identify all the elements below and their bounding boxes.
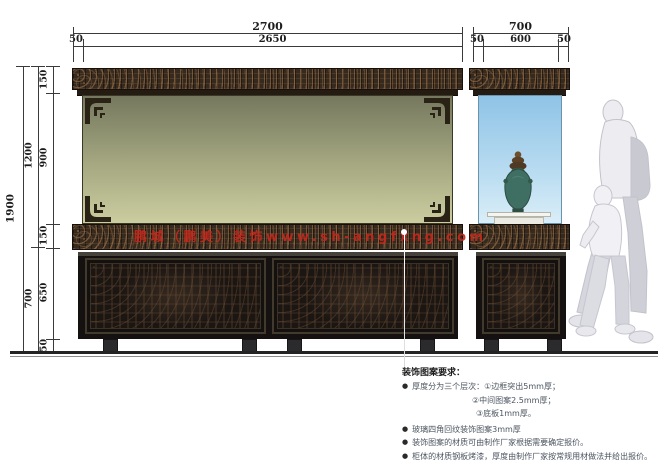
main-top-frieze bbox=[72, 68, 463, 90]
main-glass-panel bbox=[82, 95, 453, 224]
dim-label-1900: 1900 bbox=[6, 189, 17, 229]
dim-label-600: 600 bbox=[483, 34, 558, 45]
dim-label-50-side-right: 50 bbox=[551, 34, 577, 45]
dim-ext-tick bbox=[462, 27, 463, 62]
dim-label-2700: 2700 bbox=[73, 21, 462, 32]
dim-ext-tick bbox=[483, 39, 484, 62]
note-text: 装饰图案的材质可由制作厂家根据需要确定报价。 bbox=[412, 438, 588, 447]
main-carved-panel-left bbox=[85, 258, 266, 334]
note-item: ●装饰图案的材质可由制作厂家根据需要确定报价。 bbox=[402, 436, 658, 450]
dim-line-segments bbox=[53, 66, 54, 352]
elevation-drawing-canvas: 2700 50 2650 700 50 600 50 1900 1200 700… bbox=[0, 0, 660, 464]
note-text: 玻璃四角回纹装饰图案3mm厚 bbox=[412, 425, 521, 434]
note-item: ●玻璃四角回纹装饰图案3mm厚 bbox=[402, 423, 658, 437]
note-item: ●柜体的材质钢板烤漆，厚度由制作厂家按常规用材做法并给出报价。 bbox=[402, 450, 658, 464]
corner-ornament-icon bbox=[85, 98, 111, 124]
dim-label-700-left: 700 bbox=[24, 279, 35, 319]
dim-label-700: 700 bbox=[473, 21, 568, 32]
note-text: 柜体的材质钢板烤漆，厚度由制作厂家按常规用材做法并给出报价。 bbox=[412, 452, 652, 461]
side-top-frieze bbox=[469, 68, 570, 90]
ground-line-shadow bbox=[10, 356, 658, 357]
dim-ext-tick bbox=[473, 27, 474, 62]
bullet-icon: ● bbox=[402, 452, 408, 460]
note-item-sub: ③底板1mm厚。 bbox=[476, 407, 658, 421]
note-item-sub: ②中间图案2.5mm厚； bbox=[472, 394, 658, 408]
note-text: ②中间图案2.5mm厚； bbox=[472, 396, 555, 405]
dim-label-150-mid: 150 bbox=[39, 216, 50, 256]
dim-tick bbox=[16, 66, 30, 67]
dim-label-650: 650 bbox=[39, 273, 50, 313]
dim-label-2650: 2650 bbox=[83, 34, 462, 45]
dim-line-600 bbox=[473, 46, 568, 47]
scale-figures bbox=[565, 93, 660, 358]
note-leader-line bbox=[404, 233, 405, 367]
main-carved-panel-right bbox=[272, 258, 454, 334]
side-carved-panel bbox=[482, 258, 560, 334]
dim-ext-tick bbox=[568, 27, 569, 62]
dim-label-50-feet: 50 bbox=[39, 326, 50, 366]
bullet-icon: ● bbox=[402, 425, 408, 433]
note-text: 厚度分为三个层次：①边框突出5mm厚； bbox=[412, 382, 560, 391]
dim-ext-tick bbox=[83, 39, 84, 62]
corner-ornament-icon bbox=[424, 196, 450, 222]
corner-ornament-icon bbox=[85, 196, 111, 222]
decoration-notes: 装饰图案要求： ●厚度分为三个层次：①边框突出5mm厚； ②中间图案2.5mm厚… bbox=[402, 367, 658, 464]
artifact-vase bbox=[501, 150, 535, 216]
dim-ext-tick bbox=[558, 39, 559, 62]
note-leader-dot bbox=[401, 229, 407, 235]
bullet-icon: ● bbox=[402, 382, 408, 390]
bullet-icon: ● bbox=[402, 438, 408, 446]
note-text: ③底板1mm厚。 bbox=[476, 409, 536, 418]
note-item: ●厚度分为三个层次：①边框突出5mm厚； bbox=[402, 380, 658, 394]
dim-ext-tick bbox=[73, 27, 74, 62]
watermark-text: 鹏城（鹏美）装饰www.sh-angfxng.com bbox=[134, 226, 487, 245]
notes-title: 装饰图案要求： bbox=[402, 367, 658, 380]
dim-line-2650 bbox=[73, 46, 462, 47]
ground-line bbox=[10, 351, 658, 354]
dim-label-1200: 1200 bbox=[24, 136, 35, 176]
corner-ornament-icon bbox=[424, 98, 450, 124]
dim-label-900: 900 bbox=[39, 138, 50, 178]
dim-label-150-top: 150 bbox=[39, 60, 50, 100]
